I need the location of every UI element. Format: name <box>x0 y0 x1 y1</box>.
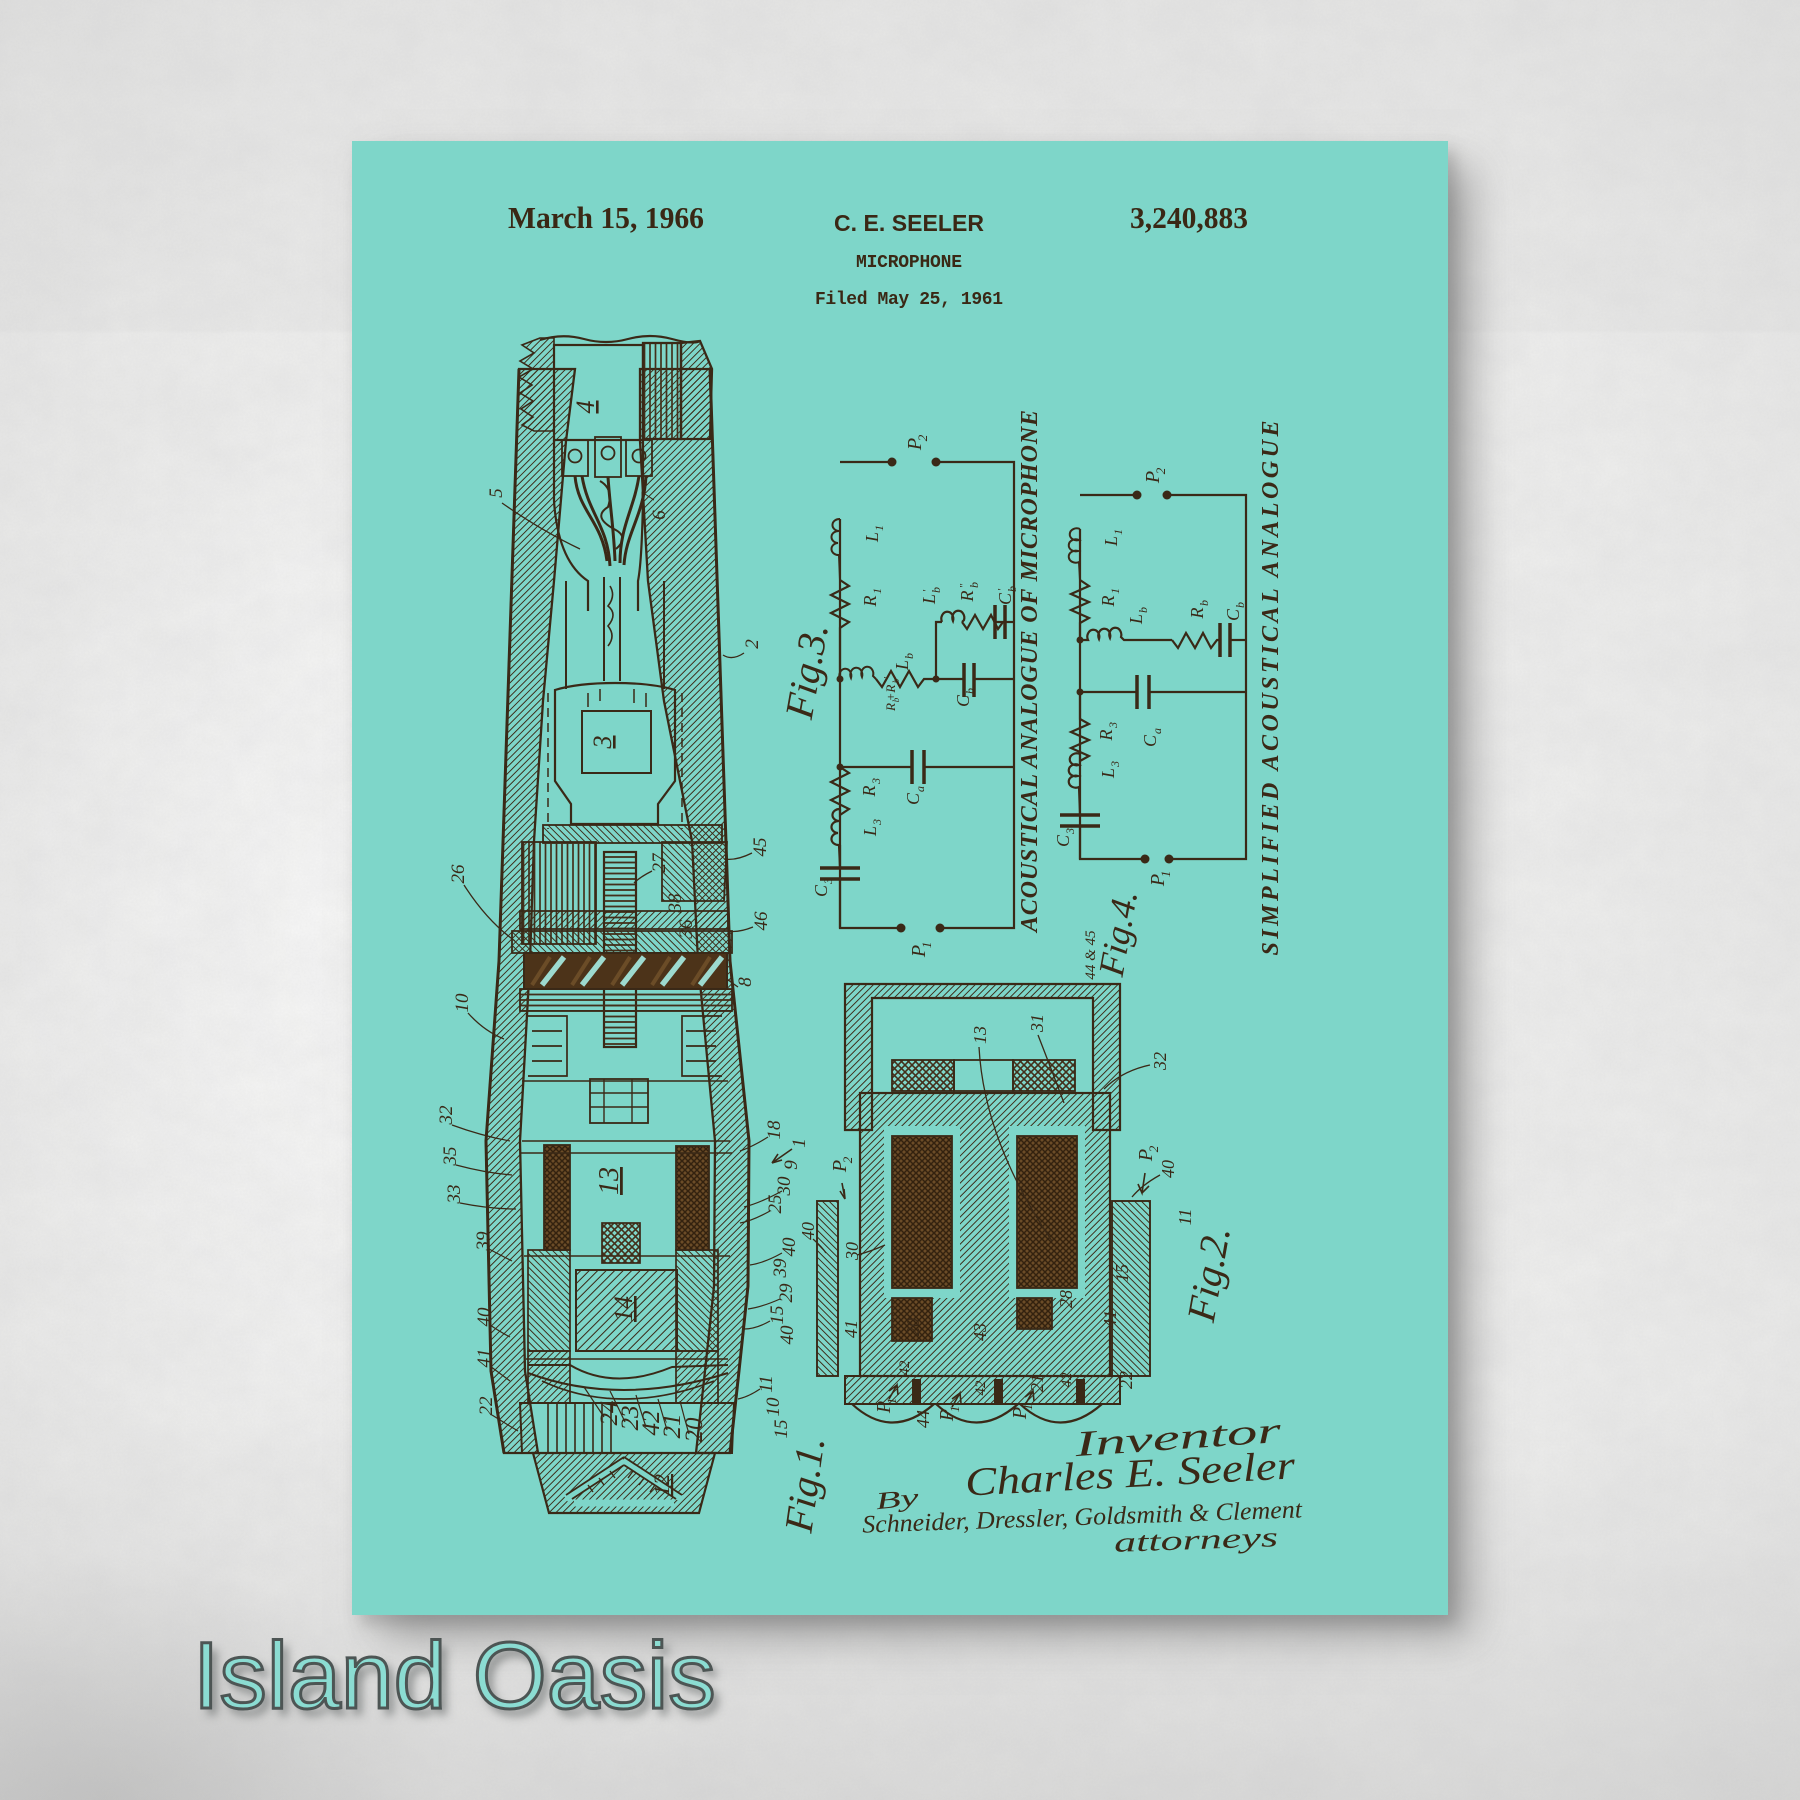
svg-text:32: 32 <box>436 1105 457 1126</box>
svg-text:R: R <box>883 703 898 712</box>
svg-text:39: 39 <box>473 1231 494 1252</box>
svg-text:Fig.3.: Fig.3. <box>776 620 837 723</box>
svg-text:1: 1 <box>947 1406 962 1413</box>
svg-text:1: 1 <box>1111 529 1125 535</box>
svg-text:14: 14 <box>609 1296 638 1322</box>
svg-text:13: 13 <box>594 1167 625 1195</box>
svg-text:C: C <box>903 792 923 805</box>
svg-text:42: 42 <box>897 1360 913 1376</box>
svg-text:L: L <box>860 826 880 837</box>
svg-text:40: 40 <box>798 1222 818 1240</box>
svg-text:C: C <box>1223 608 1243 621</box>
svg-text:15: 15 <box>1112 1264 1132 1282</box>
svg-text:27: 27 <box>649 852 670 873</box>
svg-text:43: 43 <box>970 1323 990 1341</box>
svg-text:L: L <box>892 660 912 671</box>
svg-text:4: 4 <box>571 401 600 414</box>
svg-text:L: L <box>862 532 882 543</box>
svg-text:3: 3 <box>1106 722 1120 729</box>
svg-text:22: 22 <box>1116 1371 1136 1389</box>
svg-text:25: 25 <box>765 1195 786 1214</box>
svg-text:C: C <box>1053 834 1073 847</box>
svg-text:+R: +R <box>883 685 898 702</box>
svg-text:b: b <box>1233 602 1247 608</box>
svg-text:26: 26 <box>448 864 469 884</box>
svg-text:L: L <box>1098 768 1118 779</box>
svg-text:C: C <box>995 592 1015 605</box>
svg-text:SIMPLIFIED ACOUSTICAL ANALOGUE: SIMPLIFIED ACOUSTICAL ANALOGUE <box>1258 421 1284 956</box>
svg-text:3,240,883: 3,240,883 <box>1130 200 1248 235</box>
svg-text:1: 1 <box>789 1138 810 1148</box>
svg-text:b: b <box>1136 607 1150 613</box>
svg-text:1: 1 <box>1020 1404 1035 1411</box>
svg-text:5: 5 <box>486 488 507 498</box>
svg-text:7: 7 <box>638 491 659 502</box>
svg-text:38: 38 <box>665 893 686 914</box>
svg-text:32: 32 <box>1150 1052 1170 1071</box>
svg-text:15: 15 <box>767 1306 788 1325</box>
svg-text:R: R <box>1187 608 1207 620</box>
svg-text:R: R <box>1098 596 1118 608</box>
svg-text:2: 2 <box>742 639 763 649</box>
svg-text:39: 39 <box>770 1258 791 1279</box>
svg-text:R: R <box>859 786 879 798</box>
svg-text:1: 1 <box>1158 871 1173 878</box>
svg-text:36: 36 <box>676 919 697 940</box>
svg-text:a: a <box>1150 728 1164 734</box>
svg-text:30: 30 <box>842 1242 862 1261</box>
svg-text:42: 42 <box>1059 1372 1075 1388</box>
svg-text:1: 1 <box>884 1398 899 1405</box>
svg-text:b: b <box>1197 600 1211 606</box>
svg-text:1: 1 <box>870 588 884 594</box>
svg-text:10: 10 <box>763 1397 784 1417</box>
svg-text:Filed May 25, 1961: Filed May 25, 1961 <box>815 290 1003 310</box>
svg-text:Charles E. Seeler: Charles E. Seeler <box>964 1442 1296 1504</box>
svg-text:31: 31 <box>1027 1014 1047 1033</box>
svg-text:22: 22 <box>476 1396 497 1416</box>
svg-text:C. E. SEELER: C. E. SEELER <box>834 210 984 236</box>
svg-text:3: 3 <box>1108 761 1122 768</box>
svg-text:a: a <box>913 786 927 792</box>
svg-text:2: 2 <box>840 1156 855 1163</box>
svg-text:L: L <box>1101 536 1121 547</box>
svg-text:3: 3 <box>821 878 835 885</box>
svg-text:3: 3 <box>1063 828 1077 835</box>
svg-text:C: C <box>953 694 973 707</box>
svg-text:March 15, 1966: March 15, 1966 <box>508 200 704 235</box>
svg-text:L: L <box>919 594 939 605</box>
svg-text:R: R <box>1096 730 1116 742</box>
svg-text:R: R <box>957 591 977 603</box>
svg-text:b: b <box>902 653 916 659</box>
svg-text:41: 41 <box>1100 1310 1120 1328</box>
svg-text:attorneys: attorneys <box>1114 1522 1279 1559</box>
svg-text:R: R <box>860 596 880 608</box>
svg-text:Fig.2.: Fig.2. <box>1178 1223 1239 1326</box>
svg-text:3: 3 <box>869 778 883 785</box>
svg-text:Fig.4.: Fig.4. <box>1091 887 1145 980</box>
svg-text:46: 46 <box>751 911 772 931</box>
svg-text:b: b <box>967 582 981 588</box>
svg-text:8: 8 <box>735 977 756 987</box>
svg-text:28: 28 <box>1056 1290 1076 1308</box>
svg-text:40: 40 <box>777 1325 798 1345</box>
svg-text:3: 3 <box>588 736 617 750</box>
svg-text:2: 2 <box>1153 467 1168 474</box>
svg-text:44: 44 <box>913 1410 933 1428</box>
svg-text:C: C <box>1140 734 1160 747</box>
svg-text:b: b <box>963 688 977 694</box>
svg-text:MICROPHONE: MICROPHONE <box>856 253 962 273</box>
svg-text:40: 40 <box>474 1307 495 1327</box>
svg-text:3: 3 <box>870 819 884 826</box>
svg-text:12: 12 <box>649 1474 674 1496</box>
svg-text:21: 21 <box>1027 1374 1047 1392</box>
svg-text:40: 40 <box>1158 1160 1178 1178</box>
svg-text:10: 10 <box>452 993 473 1013</box>
svg-text:1: 1 <box>919 942 934 949</box>
svg-text:41: 41 <box>474 1349 495 1368</box>
svg-text:ACOUSTICAL ANALOGUE OF MICROPH: ACOUSTICAL ANALOGUE OF MICROPHONE <box>1017 410 1043 934</box>
svg-text:2: 2 <box>915 434 930 441</box>
svg-text:20: 20 <box>903 1318 923 1336</box>
svg-text:11: 11 <box>1175 1209 1195 1226</box>
svg-text:45: 45 <box>750 838 771 857</box>
svg-text:6: 6 <box>649 510 670 520</box>
svg-text:C: C <box>811 884 831 897</box>
svg-text:35: 35 <box>440 1147 461 1167</box>
svg-text:2: 2 <box>1146 1145 1161 1152</box>
svg-text:33: 33 <box>444 1185 465 1205</box>
svg-text:b: b <box>929 587 943 593</box>
svg-text:L: L <box>1126 614 1146 625</box>
svg-text:Fig.1.: Fig.1. <box>775 1434 833 1536</box>
svg-text:1: 1 <box>872 525 886 531</box>
svg-text:41: 41 <box>841 1320 861 1338</box>
svg-text:18: 18 <box>764 1120 785 1140</box>
svg-text:13: 13 <box>970 1026 990 1044</box>
svg-text:42: 42 <box>973 1380 989 1396</box>
svg-text:9: 9 <box>781 1160 802 1170</box>
svg-text:1: 1 <box>1108 588 1122 594</box>
